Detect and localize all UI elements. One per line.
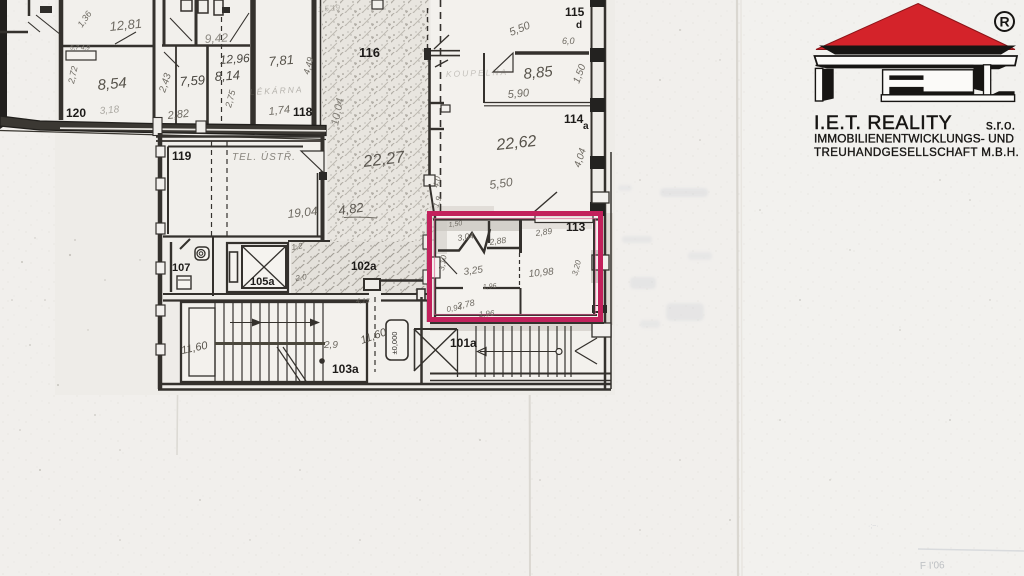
svg-text:5,7 4,9: 5,7 4,9 — [70, 45, 90, 52]
svg-text:R: R — [999, 14, 1009, 30]
svg-text:3,18: 3,18 — [99, 104, 120, 117]
svg-text:2,82: 2,82 — [166, 108, 190, 122]
svg-text:119: 119 — [172, 149, 192, 163]
svg-text:5,90: 5,90 — [507, 87, 530, 101]
svg-text:d: d — [576, 20, 582, 31]
svg-text:8,54: 8,54 — [97, 75, 128, 94]
svg-text:107: 107 — [172, 262, 190, 274]
svg-text:120: 120 — [66, 106, 86, 120]
svg-text:12,96: 12,96 — [219, 51, 250, 67]
svg-text:1,74: 1,74 — [268, 104, 291, 118]
svg-text:114: 114 — [564, 112, 584, 126]
svg-text:s.r.o.: s.r.o. — [986, 118, 1015, 133]
svg-text:TREUHANDGESELLSCHAFT M.B.H.: TREUHANDGESELLSCHAFT M.B.H. — [814, 146, 1019, 159]
svg-text:103a: 103a — [332, 362, 359, 376]
svg-text:115: 115 — [565, 5, 585, 19]
svg-text:1,96: 1,96 — [478, 309, 495, 319]
svg-text:2,9: 2,9 — [323, 340, 338, 351]
svg-text:102a: 102a — [351, 261, 377, 273]
svg-text:±0,000: ±0,000 — [390, 332, 399, 355]
svg-text:F I'06: F I'06 — [920, 560, 946, 572]
svg-text:105a: 105a — [250, 276, 275, 288]
svg-text:101a: 101a — [450, 336, 477, 350]
svg-text:8,85: 8,85 — [523, 63, 554, 83]
svg-text:6,0: 6,0 — [562, 36, 575, 46]
svg-text:118: 118 — [293, 105, 313, 119]
svg-text:IMMOBILIENENTWICKLUNGS- UND: IMMOBILIENENTWICKLUNGS- UND — [814, 132, 1014, 146]
svg-text:7,59: 7,59 — [179, 72, 205, 89]
svg-text:8,14: 8,14 — [214, 67, 240, 84]
svg-text:·;~·: ·;~· — [868, 523, 879, 530]
svg-text:4,13: 4,13 — [356, 298, 370, 305]
svg-text:1,96: 1,96 — [483, 283, 497, 291]
svg-text:7,81: 7,81 — [268, 52, 295, 69]
svg-text:a: a — [583, 121, 589, 132]
svg-text:TEL. ÚSTŘ.: TEL. ÚSTŘ. — [232, 150, 296, 163]
svg-text:113: 113 — [566, 220, 586, 234]
svg-text:9,42: 9,42 — [204, 30, 229, 46]
svg-text:116: 116 — [359, 45, 380, 60]
